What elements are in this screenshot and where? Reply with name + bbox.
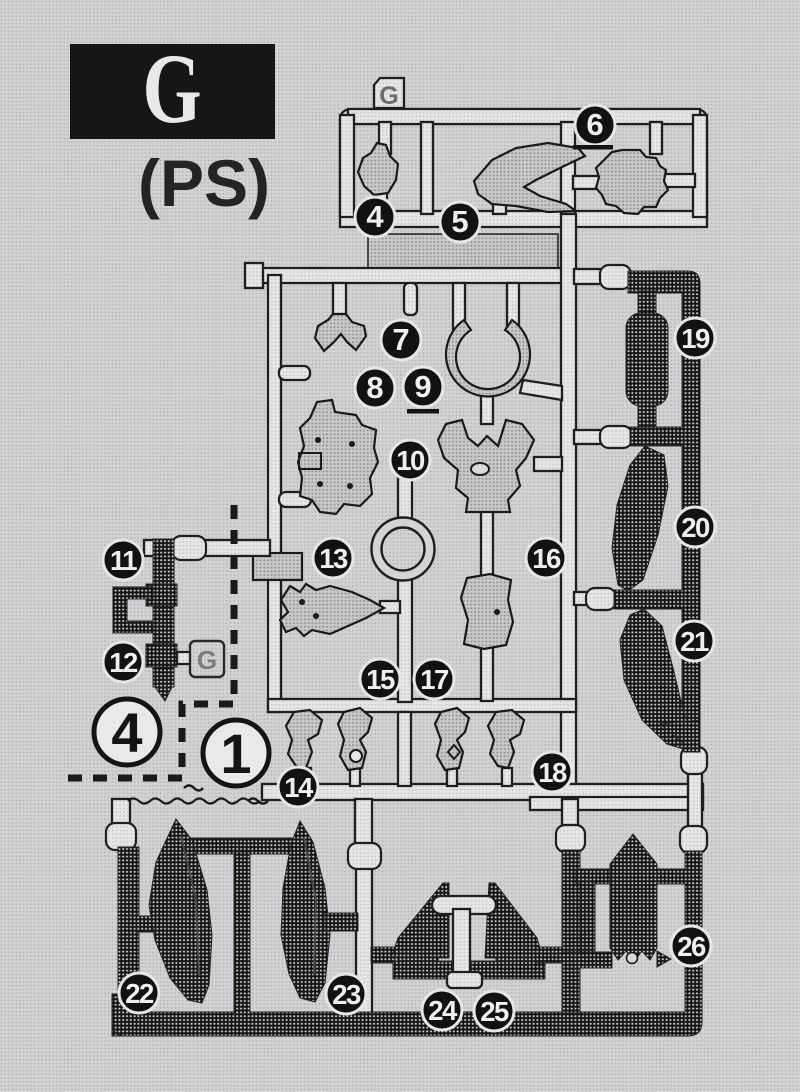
svg-text:23: 23 bbox=[332, 979, 361, 1010]
svg-text:18: 18 bbox=[538, 757, 567, 788]
svg-text:14: 14 bbox=[284, 772, 314, 803]
svg-text:G: G bbox=[379, 82, 398, 110]
svg-text:25: 25 bbox=[480, 996, 509, 1027]
svg-text:16: 16 bbox=[532, 543, 561, 574]
svg-text:G: G bbox=[142, 34, 201, 144]
svg-text:4: 4 bbox=[111, 701, 142, 764]
svg-text:20: 20 bbox=[681, 512, 710, 543]
svg-text:8: 8 bbox=[366, 370, 383, 405]
svg-text:22: 22 bbox=[125, 978, 154, 1009]
svg-text:7: 7 bbox=[392, 322, 409, 357]
svg-text:21: 21 bbox=[680, 626, 709, 657]
svg-text:13: 13 bbox=[319, 543, 348, 574]
svg-text:10: 10 bbox=[396, 445, 425, 476]
svg-text:17: 17 bbox=[420, 664, 449, 695]
svg-text:6: 6 bbox=[586, 107, 603, 142]
svg-text:(PS): (PS) bbox=[138, 146, 270, 220]
svg-text:11: 11 bbox=[110, 545, 137, 576]
svg-text:G: G bbox=[197, 645, 217, 675]
svg-text:19: 19 bbox=[681, 323, 710, 354]
svg-text:24: 24 bbox=[428, 995, 458, 1026]
svg-text:5: 5 bbox=[451, 204, 468, 239]
svg-text:26: 26 bbox=[677, 931, 706, 962]
svg-text:4: 4 bbox=[366, 199, 384, 234]
svg-text:1: 1 bbox=[220, 722, 251, 785]
svg-text:9: 9 bbox=[414, 369, 431, 404]
svg-text:15: 15 bbox=[366, 664, 395, 695]
svg-text:12: 12 bbox=[109, 647, 138, 678]
